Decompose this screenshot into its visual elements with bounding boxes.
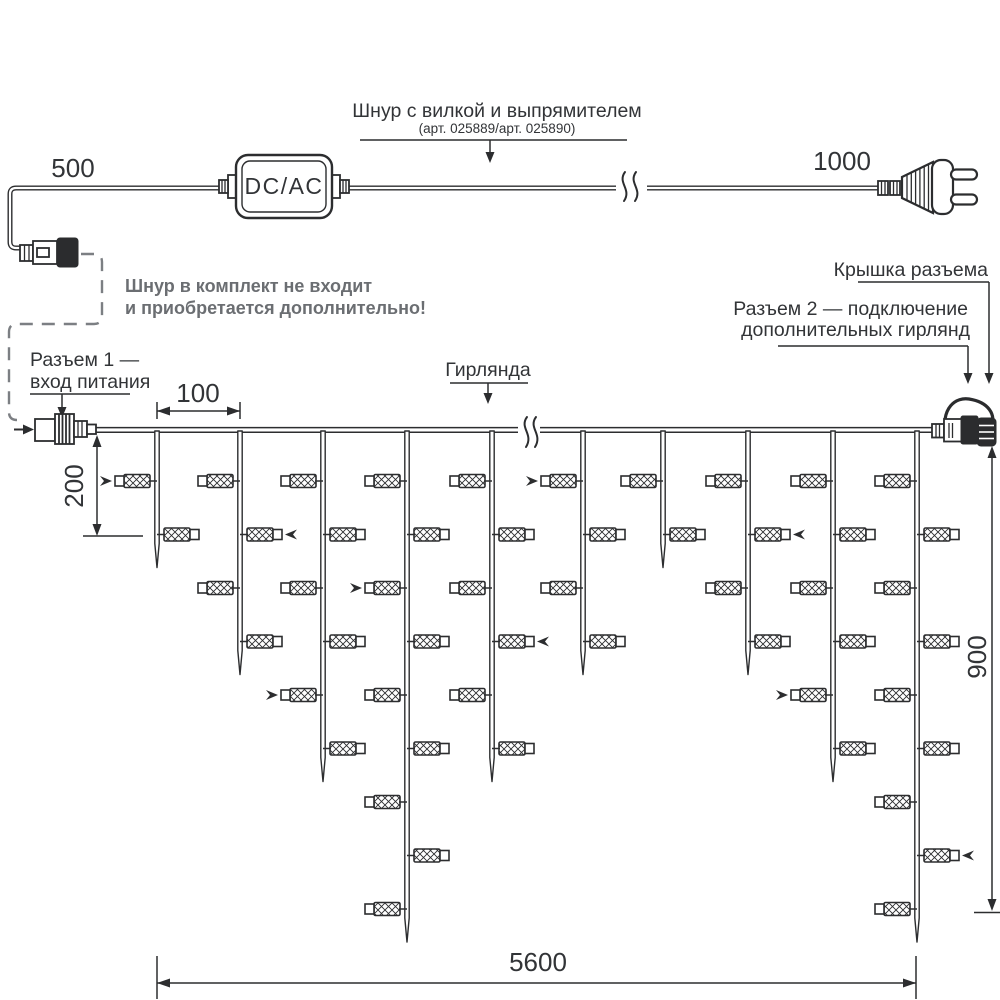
converter-right-clamp [340, 180, 349, 193]
flash-lamp-arrow-icon [266, 690, 278, 700]
led-lamp [917, 849, 959, 862]
connector2 [932, 399, 996, 446]
drop-wire [490, 431, 494, 782]
led-lamp [621, 475, 663, 488]
cord-left [10, 188, 220, 248]
led-lamp [791, 689, 833, 702]
led-lamp [833, 635, 875, 648]
led-lamp [365, 903, 407, 916]
plug-prong-top [951, 170, 977, 180]
led-lamp [365, 796, 407, 809]
dim-100: 100 [157, 378, 240, 419]
led-lamp [541, 582, 583, 595]
led-lamp [917, 742, 959, 755]
flash-lamp-arrow-icon [100, 476, 112, 486]
led-lamp [450, 689, 492, 702]
icicle-drops [100, 431, 974, 942]
garland-wiring-diagram: DC/AC [0, 0, 1000, 1000]
drop-wire [661, 431, 665, 568]
dim-100-label: 100 [176, 378, 219, 408]
led-lamp [492, 635, 534, 648]
drop-wire [915, 431, 919, 942]
cord-callout: Шнур с вилкой и выпрямителем (арт. 02588… [352, 100, 641, 163]
led-lamp [365, 582, 407, 595]
led-lamp [450, 582, 492, 595]
led-lamp [407, 528, 449, 541]
connector2-label-line1: Разъем 2 — подключение [733, 298, 968, 320]
led-lamp [791, 475, 833, 488]
connector1-label-line1: Разъем 1 — [30, 349, 140, 371]
led-lamp [583, 635, 625, 648]
led-lamp [583, 528, 625, 541]
flash-lamp-arrow-icon [526, 476, 538, 486]
dim-900-label: 900 [962, 635, 992, 678]
led-lamp [875, 796, 917, 809]
led-lamp [875, 475, 917, 488]
dc-ac-converter: DC/AC [219, 155, 349, 218]
drop-wire [405, 431, 409, 942]
drop-wire [746, 431, 750, 675]
drop-wire [581, 431, 585, 675]
flash-lamp-arrow-icon [776, 690, 788, 700]
wire-break-icon [525, 417, 538, 447]
dim-200-label: 200 [59, 464, 89, 507]
garland-main-wire [96, 417, 933, 447]
led-lamp [917, 528, 959, 541]
led-lamp [365, 689, 407, 702]
led-lamp [281, 689, 323, 702]
dim-500-label: 500 [51, 153, 94, 183]
dim-5600-label: 5600 [509, 947, 567, 977]
dim-1000-label: 1000 [813, 146, 871, 176]
drop-wire [238, 431, 242, 675]
flash-lamp-arrow-icon [350, 583, 362, 593]
dim-5600: 5600 [157, 947, 916, 999]
led-lamp [240, 528, 282, 541]
connector1 [35, 414, 96, 444]
led-lamp [323, 635, 365, 648]
led-lamp [198, 582, 240, 595]
converter-left-clamp [219, 180, 228, 193]
led-lamp [541, 475, 583, 488]
led-lamp [407, 849, 449, 862]
connector1-callout: Разъем 1 — вход питания [30, 349, 150, 418]
diagram-canvas: DC/AC [0, 0, 1000, 1000]
drop-wire [831, 431, 835, 782]
input-arrow-icon [23, 425, 34, 435]
led-lamp [748, 528, 790, 541]
connector2-label-line2: дополнительных гирлянд [741, 319, 971, 341]
cap-label: Крышка разъема [834, 259, 989, 281]
led-lamp [833, 742, 875, 755]
garland-label: Гирлянда [445, 359, 531, 381]
led-lamp [323, 742, 365, 755]
cord-label: Шнур с вилкой и выпрямителем [352, 100, 641, 122]
led-lamp [365, 475, 407, 488]
drop-wire [155, 431, 159, 568]
power-plug [878, 160, 977, 214]
led-lamp [875, 689, 917, 702]
flash-lamp-arrow-icon [537, 637, 549, 647]
power-cord-section: DC/AC [10, 100, 977, 267]
flash-lamp-arrow-icon [285, 530, 297, 540]
not-included-note: Шнур в комплект не входит и приобретаетс… [125, 276, 426, 318]
led-lamp [157, 528, 199, 541]
led-lamp [281, 475, 323, 488]
connector1-label-line2: вход питания [30, 371, 150, 393]
led-lamp [875, 903, 917, 916]
led-lamp [281, 582, 323, 595]
led-lamp [706, 582, 748, 595]
note-line1: Шнур в комплект не входит [125, 276, 372, 296]
led-lamp [706, 475, 748, 488]
led-lamp [407, 742, 449, 755]
led-lamp [492, 528, 534, 541]
converter-label: DC/AC [244, 173, 323, 199]
led-lamp [663, 528, 705, 541]
plug-prong-bottom [951, 195, 977, 205]
dim-900: 900 [962, 446, 1000, 913]
garland-callout: Гирлянда [445, 359, 531, 404]
cable-break-icon [623, 172, 638, 201]
note-line2: и приобретается дополнительно! [125, 298, 426, 318]
led-lamp [198, 475, 240, 488]
led-lamp [791, 582, 833, 595]
drop-wire [321, 431, 325, 782]
led-lamp [407, 635, 449, 648]
led-lamp [115, 475, 157, 488]
led-lamp [748, 635, 790, 648]
flash-lamp-arrow-icon [962, 851, 974, 861]
led-lamp [492, 742, 534, 755]
led-lamp [450, 475, 492, 488]
connector2-callout: Разъем 2 — подключение дополнительных ги… [733, 298, 972, 384]
led-lamp [240, 635, 282, 648]
cord-end-connector [20, 238, 78, 267]
flash-lamp-arrow-icon [793, 530, 805, 540]
dashed-connection-path [9, 254, 102, 420]
led-lamp [875, 582, 917, 595]
led-lamp [917, 635, 959, 648]
cord-sublabel: (арт. 025889/арт. 025890) [419, 121, 576, 136]
led-lamp [323, 528, 365, 541]
led-lamp [833, 528, 875, 541]
